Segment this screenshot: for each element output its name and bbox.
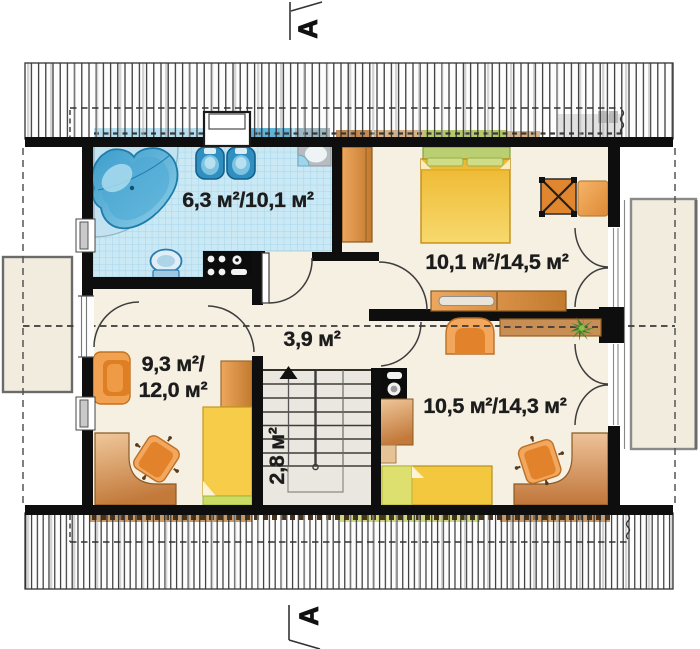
svg-text:A: A xyxy=(293,19,323,39)
svg-text:6,3 м²/10,1 м²: 6,3 м²/10,1 м² xyxy=(182,188,314,212)
svg-text:3,9 м²: 3,9 м² xyxy=(283,327,340,351)
svg-text:A: A xyxy=(294,606,324,626)
svg-text:9,3 м²/: 9,3 м²/ xyxy=(142,352,205,376)
svg-text:12,0 м²: 12,0 м² xyxy=(139,378,208,402)
svg-text:2,8 м²: 2,8 м² xyxy=(265,427,289,484)
svg-text:10,1 м²/14,5 м²: 10,1 м²/14,5 м² xyxy=(425,250,568,274)
svg-text:10,5 м²/14,3 м²: 10,5 м²/14,3 м² xyxy=(423,394,566,418)
